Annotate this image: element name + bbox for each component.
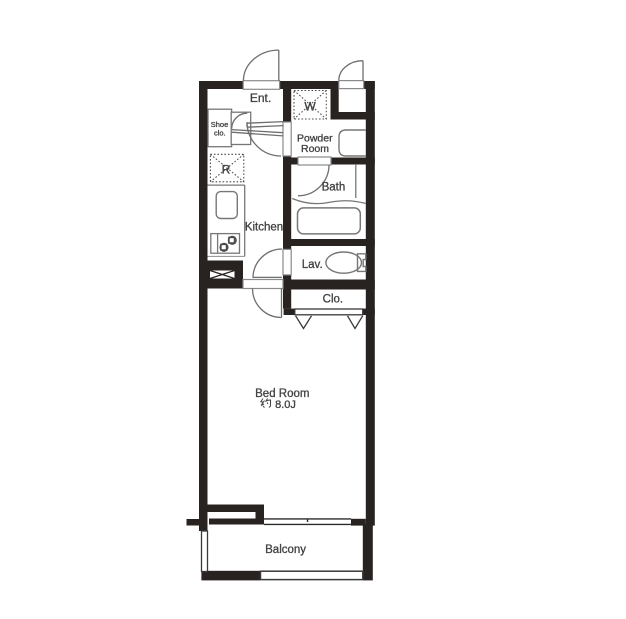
svg-text:Balcony: Balcony	[265, 544, 306, 556]
svg-text:Lav.: Lav.	[302, 259, 323, 271]
svg-text:Bath: Bath	[322, 182, 346, 194]
svg-text:Bed Room: Bed Room	[255, 388, 309, 400]
svg-text:clo.: clo.	[214, 129, 226, 138]
svg-text:Clo.: Clo.	[323, 293, 343, 305]
svg-text:R: R	[222, 163, 231, 177]
svg-text:W: W	[304, 100, 316, 114]
svg-text:Ent.: Ent.	[250, 91, 271, 105]
svg-text:8.0J: 8.0J	[275, 399, 296, 411]
svg-text:Kitchen: Kitchen	[245, 222, 283, 234]
svg-text:Room: Room	[301, 143, 329, 155]
